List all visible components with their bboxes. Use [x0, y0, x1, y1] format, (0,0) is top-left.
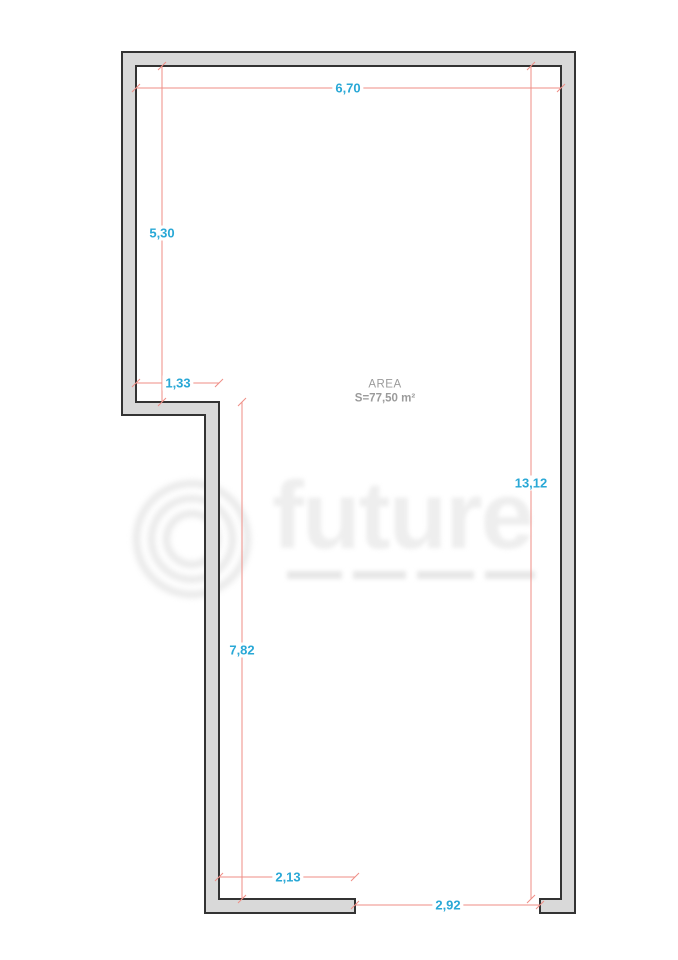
wall-outline	[122, 52, 575, 913]
dimension-label-step-width: 1,33	[162, 376, 193, 391]
dimension-label-right-height: 13,12	[512, 476, 551, 491]
dimension-label-upper-left-height: 5,30	[146, 226, 177, 241]
floor-plan-drawing	[0, 0, 678, 960]
dimension-label-bottom-opening-width: 2,92	[432, 898, 463, 913]
dimension-label-top-width: 6,70	[332, 81, 363, 96]
area-title: AREA	[355, 378, 415, 392]
floor-plan-page: future 6,70 5,30 1,33 13,12 7,82 2,13 2,…	[0, 0, 678, 960]
area-label: AREA S=77,50 m²	[355, 378, 415, 407]
area-value: S=77,50 m²	[355, 392, 415, 406]
dimension-label-lower-left-height: 7,82	[226, 643, 257, 658]
dimension-label-bottom-left-width: 2,13	[272, 870, 303, 885]
